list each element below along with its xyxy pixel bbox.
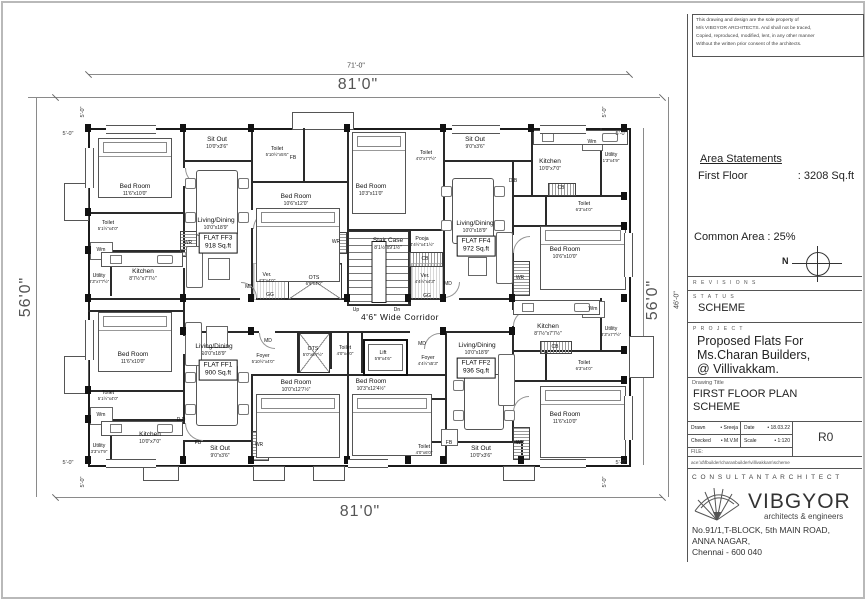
column [85,124,91,132]
room-label-ff2-living: Living/Dining10'0"x18'9" [458,342,495,356]
room-label-ff3-kitchen: Kitchen8'7½"x7'7½" [129,268,156,282]
column [344,294,350,302]
chair [441,186,452,197]
main-door-tag: MD [418,341,426,347]
column [180,124,186,132]
bed [256,394,340,458]
wall [275,331,410,333]
room-label-foyer-ff1: Foyer5'10½"x4'0" [252,353,275,365]
dimension-line [668,97,669,497]
status-label: S T A T U S [693,294,735,300]
titleblock-rule [687,421,862,422]
drawing-title-label: Drawing Title [692,380,724,386]
room-label-ff4-living: Living/Dining10'0"x18'9" [456,220,493,234]
column [180,327,186,335]
column [180,456,186,464]
fb-tag: FB [290,155,296,161]
room-label-ots-top: OTS6'9"x4'0" [306,275,323,287]
flat-label-ff3: FLAT FF3918 Sq.ft [199,233,238,254]
db-tag: D.B [509,178,517,184]
room-label-ff3-toilet1: Toilet5'1½"x4'0" [98,220,118,232]
wall [459,298,512,300]
flat-label-ff1: FLAT FF1900 Sq.ft [199,360,238,381]
offset-dim: 5'-0" [80,477,86,488]
window [106,125,156,134]
room-label-ff4-utility: Utility1'3"x4'9" [603,152,620,164]
titleblock-rule [687,377,862,378]
wall [251,181,347,183]
first-floor-value: : 3208 Sq.ft [798,170,854,182]
bed [352,132,406,214]
room-label-ff2-utility: Utility3'3"x7'7½" [601,326,621,338]
washing-machine-tag: Wm [589,306,598,312]
titleblock-rule [687,322,862,323]
room-label-ff1-bed1: Bed Room11'6"x10'0" [118,351,149,365]
column [440,327,446,335]
wall [443,128,445,298]
cupboard-tag: CB [558,185,565,191]
chair [185,372,196,383]
chair [453,410,464,421]
column [528,124,534,132]
room-label-ff1-toilet1: Toilet5'1½"x4'0" [98,390,118,402]
dimension-line [28,97,660,98]
room-label-foyer-ff2: Foyer4'4½"x5'3" [418,355,438,367]
column [85,246,91,254]
offset-dim: 5'-0" [63,131,74,137]
offset-dim: 5'-0" [80,107,86,118]
status-value: SCHEME [698,302,745,314]
chair [494,186,505,197]
dimension-line [36,97,37,497]
chair [453,380,464,391]
chair [185,404,196,415]
wall [183,128,185,168]
window [540,459,586,468]
chair [238,178,249,189]
chair [494,220,505,231]
wall [545,350,547,380]
room-label-ff3-bed1: Bed Room11'6"x10'0" [120,183,151,197]
side-table [468,257,487,276]
titleblock-rule [740,421,741,447]
column [621,346,627,354]
wall [445,331,512,333]
wardrobe-tag: WR [184,240,192,246]
room-label-ff3-bed2: Bed Room10'6"x12'0" [281,193,312,207]
first-floor-area-row: First Floor : 3208 Sq.ft [698,170,854,182]
window [85,148,94,188]
chair [441,220,452,231]
window [624,396,633,440]
chair [504,410,515,421]
column [248,327,254,335]
room-label-pooja: Pooja4'4½"x4'1½" [410,236,434,248]
titleblock-rule [687,447,792,448]
window [106,459,156,468]
stair-up-label: Up [353,307,359,313]
offset-dim: 5'-0" [616,131,627,137]
dim-bottom: 81'0" [340,503,380,521]
side-table [208,258,230,280]
file-path: ace:\d\fbuilder\charanbuilder\villivakka… [691,460,790,465]
column [85,386,91,394]
project-label: P R O J E C T [693,326,744,332]
room-label-ff1-living: Living/Dining10'0"x18'9" [195,343,232,357]
wall [183,160,251,162]
room-label-ots-bottom: OTS5'0"x6'7½" [303,346,323,358]
titleblock-border [687,14,688,562]
dimension-line [88,74,630,75]
column [621,376,627,384]
scale-row: Scale• 1:120 [744,438,790,444]
dim-right: 56'0" [644,280,662,320]
cupboard-tag: CB [422,256,429,262]
wall [303,128,305,181]
wall [251,128,253,210]
wall [512,380,627,382]
room-label-core-toilet: Toilet4'0"x4'0" [337,345,354,357]
date-row: Date• 18.03.22 [744,425,790,431]
room-label-ff2-sitout: Sit Out10'0"x3'6" [470,445,492,459]
room-label-ff1-bed2: Bed Room10'0"x12'7½" [281,379,312,393]
washing-machine-tag: Wm [588,139,597,145]
dim-top-inner: 71'-0" [347,63,365,70]
column [248,294,254,302]
file-label: FILE: [691,449,703,455]
titleblock-rule [687,468,862,469]
column [621,222,627,230]
room-label-ff2-kitchen: Kitchen8'7½"x7'7½" [534,323,561,337]
column [344,124,350,132]
column [248,124,254,132]
vibgyor-logo-icon [690,486,744,522]
titleblock-rule [687,276,862,277]
fb-tag: FB [446,440,452,446]
dimension-line [55,497,663,498]
wardrobe-tag: WR [516,440,524,446]
firm-tagline: architects & engineers [764,512,843,521]
room-label-ff4-toilet1: Toilet4'0"x7'7½" [416,150,436,162]
window [452,125,500,134]
projection [313,466,345,481]
room-label-ff3-sitout: Sit Out10'0"x3'6" [206,136,228,150]
room-label-ff4-bed2: Bed Room10'6"x10'0" [550,246,581,260]
room-label-ff2-toilet2: Toilet6'3"x4'0" [576,360,593,372]
offset-dim: 5'-0" [63,460,74,466]
column [509,327,515,335]
wardrobe-tag: WR [332,239,340,245]
room-label-ff4-toilet2: Toilet6'3"x4'0" [576,201,593,213]
room-label-staircase: Stair Case8'1½"x9'1½" [373,237,403,251]
wall [183,440,251,442]
chair [238,212,249,223]
chair [185,178,196,189]
room-label-ff4-kitchen: Kitchen10'0"x7'0" [539,158,561,172]
column [85,415,91,423]
consultant-heading: C O N S U L T A N T A R C H I T E C T [692,474,840,481]
titleblock-rule [792,421,793,456]
dim-top: 81'0" [338,76,378,94]
window [85,320,94,360]
offset-dim: 5'-0" [602,477,608,488]
chair [238,372,249,383]
window [624,233,633,277]
kitchen-counter [101,252,183,267]
checked-row: Checked• M.V.M [691,438,738,444]
main-door-tag: MD [245,284,253,290]
column [440,456,446,464]
drawing-title: FIRST FLOOR PLAN SCHEME [693,388,797,413]
room-label-ff3-living: Living/Dining10'0"x18'9" [197,217,234,231]
dining-table [452,178,494,244]
first-floor-label: First Floor [698,170,748,182]
wall [88,298,240,300]
column [85,208,91,216]
column [405,456,411,464]
room-label-ff3-utility: Utility3'3"x7'7½" [89,273,109,285]
washing-machine-tag: Wm [97,247,106,253]
dim-right-inner: 46'-0" [674,291,681,309]
wall [88,212,183,214]
washing-machine-tag: Wm [97,412,106,418]
room-label-ff2-bed1: Bed Room10'3"x12'4½" [356,378,387,392]
grill-gate-tag: GG [423,293,431,299]
column [405,294,411,302]
wall [512,160,514,235]
fb-tag: FB [195,440,201,446]
column [85,456,91,464]
window [540,125,586,134]
room-label-ff3-toilet2: Toilet5'10½"x5'6" [266,146,289,158]
chair [185,212,196,223]
revision-number: R0 [818,430,833,444]
room-label-ff4-bed1: Bed Room10'3"x11'0" [356,183,387,197]
offset-dim: 5'-0" [602,107,608,118]
wall [330,331,332,369]
projection [253,466,285,481]
room-label-ff1-kitchen: Kitchen10'0"x7'0" [139,431,161,445]
offset-dim: 5'-0" [616,460,627,466]
room-label-ff4-sitout: Sit Out9'0"x3'6" [465,136,485,150]
column [440,124,446,132]
wall [251,374,445,376]
kitchen-counter [513,300,600,315]
titleblock-rule [687,456,862,457]
firm-name: VIBGYOR [748,490,851,514]
dd-tag: D.D [177,417,186,423]
wall [545,195,547,225]
column [440,294,446,302]
room-label-ff1-sitout: Sit Out9'0"x3'6" [210,445,230,459]
chair [238,404,249,415]
corridor-label: 4'6" Wide Corridor [361,312,439,322]
room-label-lift: Lift5'9"x4'6" [375,350,392,362]
column [180,294,186,302]
sofa [498,354,515,406]
main-door-tag: MD [444,281,452,287]
column [248,456,254,464]
wardrobe-tag: WR [255,442,263,448]
wardrobe-tag: WR [516,275,524,281]
room-label-ff2-bed2: Bed Room11'6"x10'0" [550,411,581,425]
architect-address: No.91/1,T-BLOCK, 5th MAIN ROAD, ANNA NAG… [692,525,830,558]
north-label: N [782,256,789,266]
common-area-note: Common Area : 25% [694,231,796,243]
project-name: Proposed Flats For Ms.Charan Builders, @… [697,334,810,376]
bed [256,208,340,282]
projection [629,336,654,378]
window [348,459,388,468]
flat-label-ff2: FLAT FF2936 Sq.ft [457,358,496,379]
wall [443,160,531,162]
room-label-ver-right: Ver.4'4½"x4'3" [415,273,435,285]
column [509,294,515,302]
cupboard-tag: CB [552,344,559,350]
titleblock-rule [687,290,862,291]
column [621,294,627,302]
column [518,456,524,464]
projection [143,466,179,481]
stair-down-label: Dn [394,307,400,313]
flat-label-ff4: FLAT FF4972 Sq.ft [457,236,496,257]
room-label-ver-left: Ver.4'3"x4'0" [259,272,276,284]
sofa [496,232,513,284]
room-label-ff2-toilet1: Toilet4'0"x6'0" [416,444,433,456]
area-statements-heading: Area Statements [700,153,782,165]
drawn-row: Drawn• Sreeja [691,425,738,431]
column [621,192,627,200]
grill-gate-tag: GG [266,292,274,298]
copyright-note: This drawing and design are the sole pro… [692,14,864,57]
main-door-tag: MD [264,338,272,344]
column [85,294,91,302]
dim-left: 56'0" [17,277,35,317]
revisions-heading: R E V I S I O N S [693,280,757,286]
room-label-ff1-utility: Utility3'3"x7'9" [91,443,108,455]
projection [503,466,535,481]
drawing-sheet: 71'-0" 81'0" 81'0" 56'0" 56'0" 46'-0" 5'… [0,0,866,600]
